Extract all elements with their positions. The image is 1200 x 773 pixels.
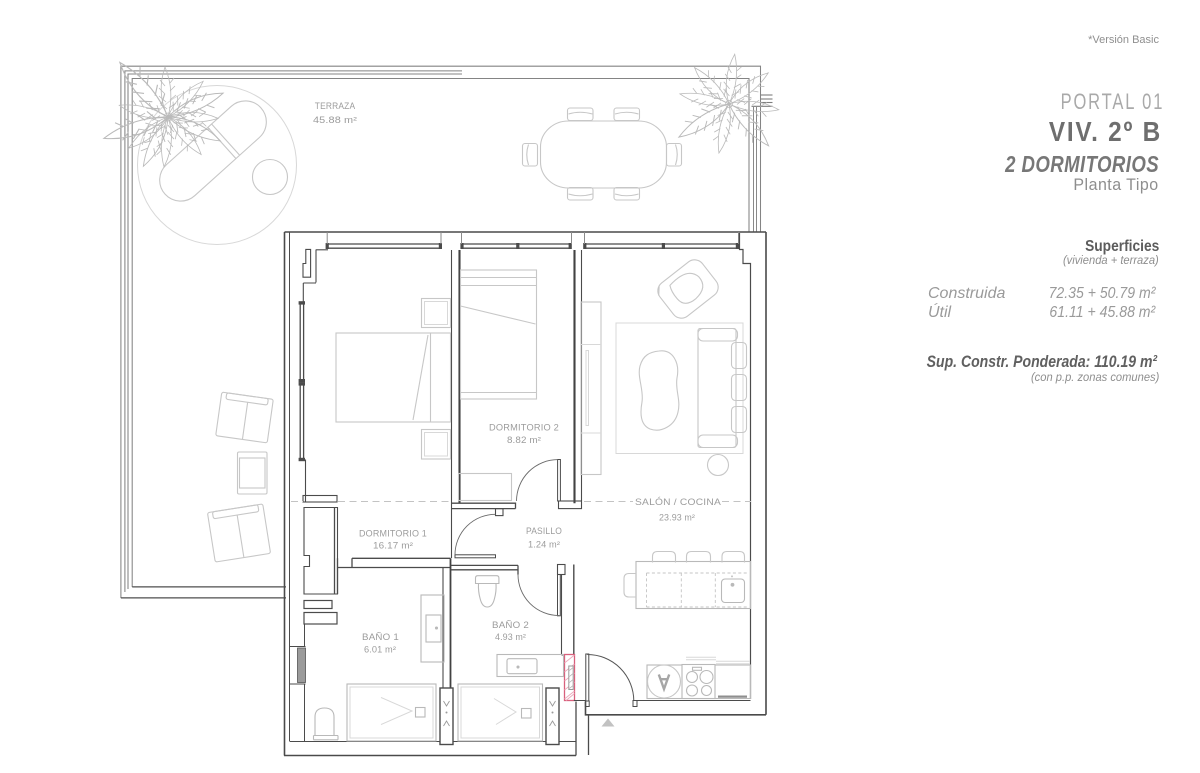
svg-text:SALÓN / COCINA: SALÓN / COCINA [635,497,722,507]
svg-text:1.24 m²: 1.24 m² [528,540,560,550]
svg-text:45.88 m²: 45.88 m² [313,115,357,125]
svg-text:BAÑO 1: BAÑO 1 [362,632,399,642]
svg-text:4.93 m²: 4.93 m² [495,632,526,642]
svg-text:8.82 m²: 8.82 m² [507,435,541,445]
svg-text:DORMITORIO 2: DORMITORIO 2 [489,423,559,433]
svg-text:TERRAZA: TERRAZA [315,101,356,111]
svg-text:23.93 m²: 23.93 m² [659,513,695,523]
svg-text:BAÑO 2: BAÑO 2 [492,620,529,630]
svg-text:DORMITORIO 1: DORMITORIO 1 [359,529,427,539]
svg-text:6.01 m²: 6.01 m² [364,645,396,655]
svg-text:16.17 m²: 16.17 m² [373,541,413,551]
svg-text:PASILLO: PASILLO [526,526,562,536]
